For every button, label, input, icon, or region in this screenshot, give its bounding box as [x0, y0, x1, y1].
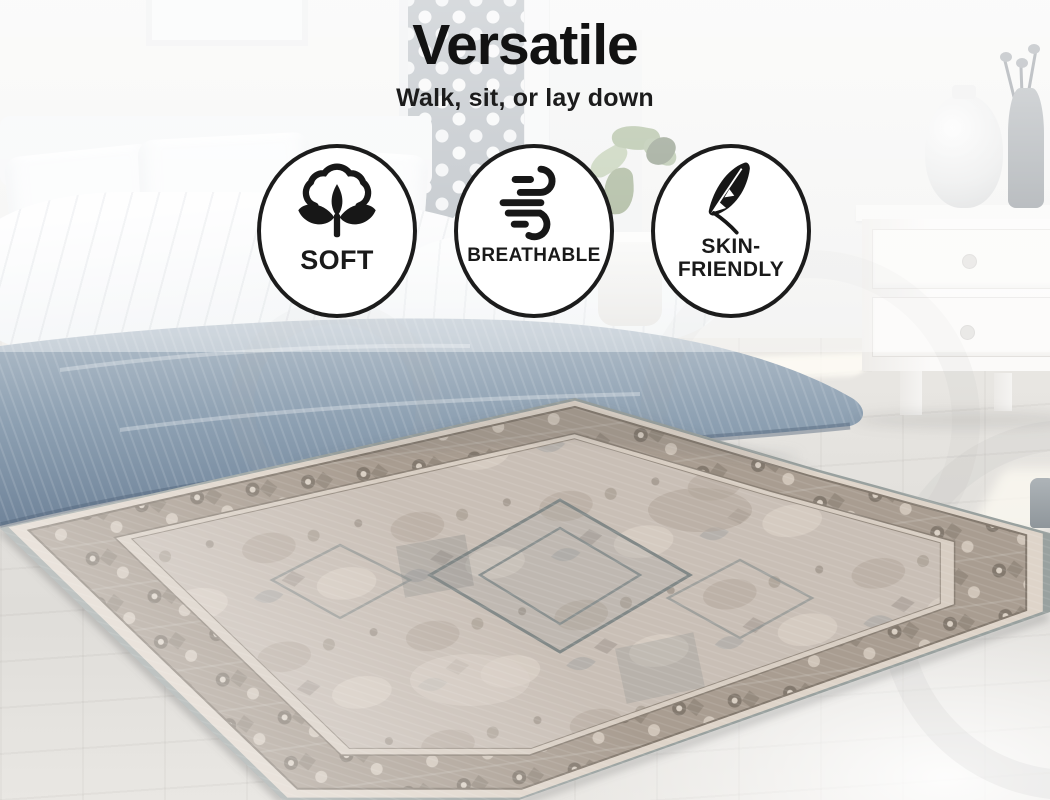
page-subtitle: Walk, sit, or lay down [0, 84, 1050, 113]
badge-label-line: SOFT [300, 245, 374, 275]
badge-breathable: BREATHABLE [454, 144, 614, 318]
badge-skin-friendly: SKIN- FRIENDLY [651, 144, 811, 318]
badge-soft: SOFT [257, 144, 417, 318]
badge-label-line: FRIENDLY [678, 259, 784, 282]
badge-label: BREATHABLE [467, 246, 600, 267]
wind-icon [491, 158, 577, 244]
page-title: Versatile [0, 12, 1050, 78]
product-infographic: Versatile Walk, sit, or lay down SOFT [0, 0, 1050, 800]
badge-label-line: BREATHABLE [467, 245, 600, 266]
feather-icon [690, 158, 772, 240]
badge-label-line: SKIN- [701, 235, 760, 258]
badge-label: SOFT [300, 246, 374, 275]
cotton-flower-icon [292, 158, 382, 248]
badge-label: SKIN- FRIENDLY [678, 236, 784, 281]
